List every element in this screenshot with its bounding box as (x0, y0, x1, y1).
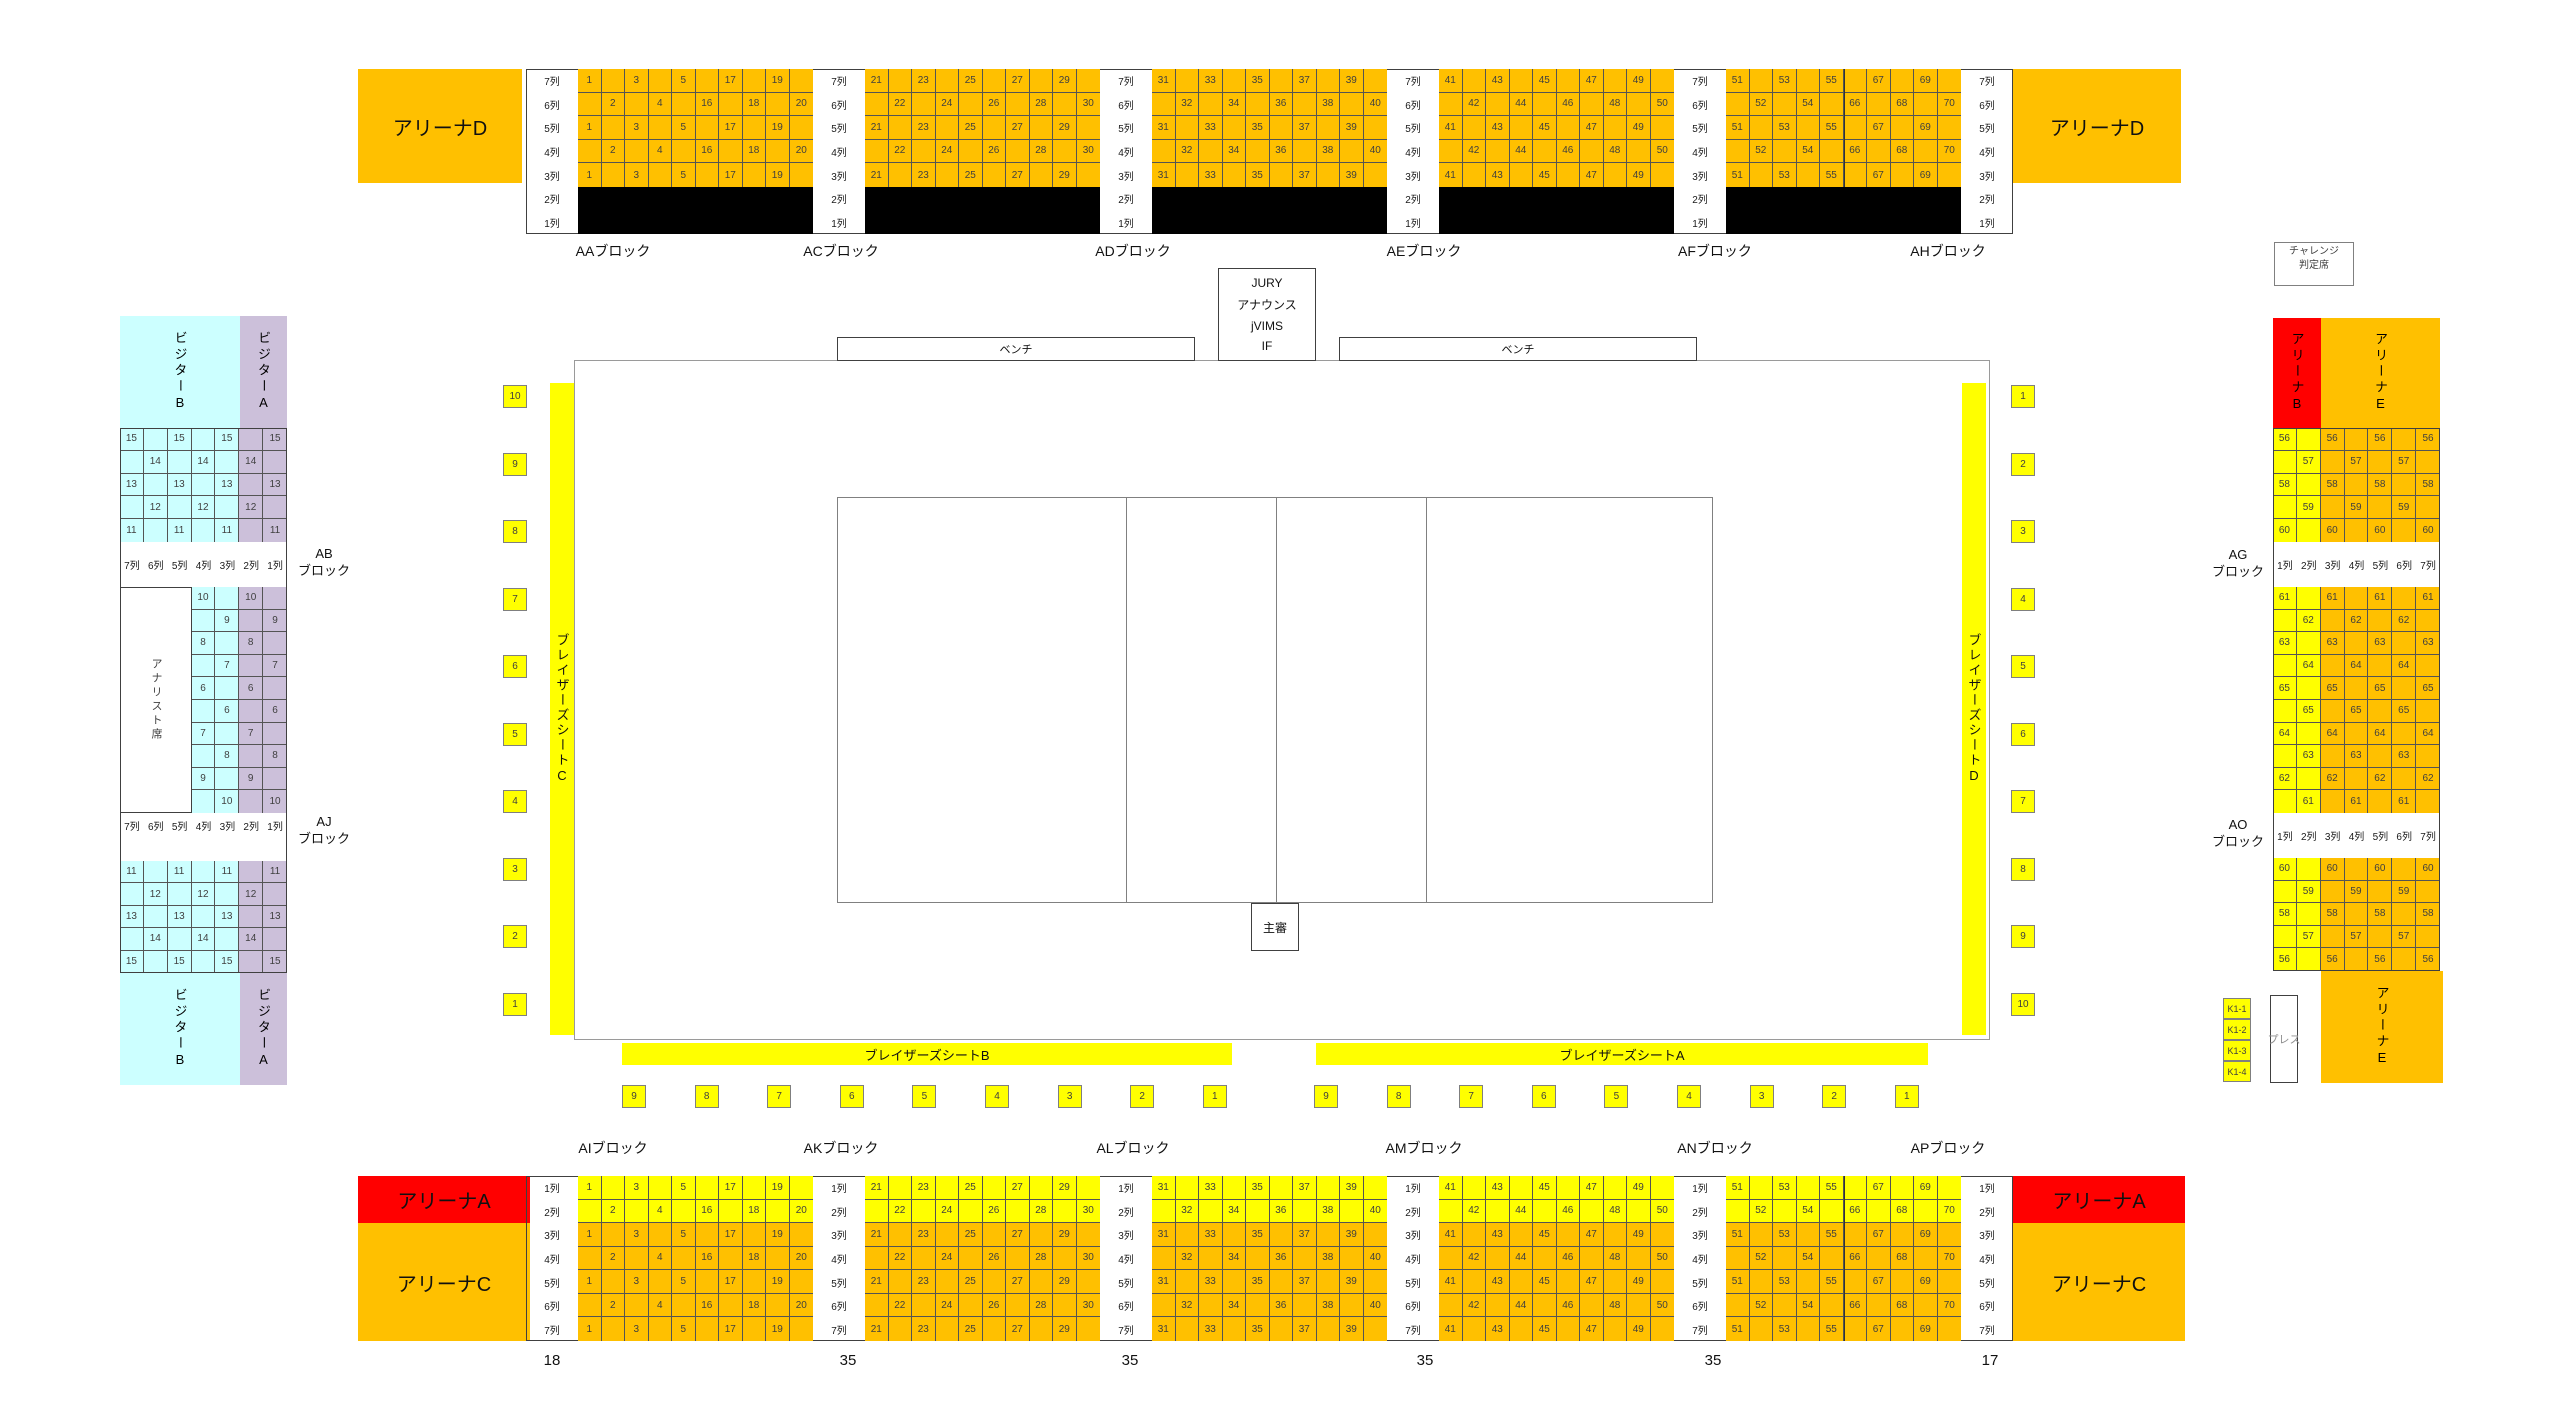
seat-cell (120, 928, 144, 950)
seat-cell: 5 (672, 1176, 696, 1200)
k1-box: K1-2 (2223, 1019, 2251, 1040)
seat-cell (1651, 1270, 1675, 1294)
seat-cell (696, 1270, 720, 1294)
seat-cell: 69 (1914, 116, 1938, 140)
seat-cell: 21 (865, 1317, 889, 1341)
aj-block-line2: ブロック (298, 831, 350, 846)
seat-cell: 31 (1152, 1176, 1176, 1200)
seat-cell (120, 496, 144, 519)
seat-cell (936, 1223, 960, 1247)
row-label: 1列 (526, 1176, 578, 1200)
seat-cell (1006, 1247, 1030, 1271)
seat-cell (959, 93, 983, 117)
seat-cell (1557, 1176, 1581, 1200)
seat-cell (1463, 1270, 1487, 1294)
seat-cell: 63 (2416, 632, 2440, 655)
seat-cell (2345, 768, 2369, 791)
seat-cell: 23 (912, 163, 936, 187)
row-label: 5列 (813, 1270, 865, 1294)
seat-cell: 1 (578, 163, 602, 187)
seat-cell (168, 451, 192, 474)
aisle-number-square: 3 (1750, 1085, 1774, 1108)
seat-cell (2297, 519, 2321, 542)
seat-cell (1726, 1200, 1750, 1224)
aj-block-line1: AJ (316, 814, 331, 829)
seat-cell: 13 (168, 906, 192, 928)
seat-cell: 34 (1223, 93, 1247, 117)
seat-cell: 34 (1223, 140, 1247, 164)
seat-cell (2273, 496, 2297, 519)
row-label: 7列 (2416, 542, 2440, 587)
seat-cell: 27 (1006, 1223, 1030, 1247)
seat-cell (1797, 1317, 1821, 1341)
seat-cell (215, 587, 239, 610)
seat-cell: 47 (1580, 1270, 1604, 1294)
seat-cell (192, 610, 216, 633)
row-label: 6列 (1674, 1294, 1726, 1318)
seat-cell: 16 (696, 93, 720, 117)
announce-line: アナウンス (1237, 296, 1297, 313)
seat-cell (1510, 1317, 1534, 1341)
seat-cell: 25 (959, 69, 983, 93)
seat-cell: 45 (1533, 1176, 1557, 1200)
seat-cell (1439, 1200, 1463, 1224)
seat-cell: 14 (192, 928, 216, 950)
seat-cell: 11 (120, 861, 144, 883)
seat-cell: 31 (1152, 1270, 1176, 1294)
seat-cell: 52 (1750, 1294, 1774, 1318)
seat-cell (1867, 140, 1891, 164)
k1-box: K1-4 (2223, 1061, 2251, 1082)
aisle-number-square: 1 (1895, 1085, 1919, 1108)
aisle-number-square: 1 (503, 993, 527, 1016)
seat-cell (2345, 723, 2369, 746)
seat-cell (649, 1270, 673, 1294)
seat-cell: 2 (602, 93, 626, 117)
row-label: 5列 (813, 116, 865, 140)
seat-cell (1891, 1270, 1915, 1294)
row-label: 6列 (1100, 93, 1152, 117)
seat-cell: 5 (672, 1223, 696, 1247)
seat-cell (672, 1247, 696, 1271)
arena-e-bottom-box: アリーナE (2321, 971, 2443, 1083)
row-label: 1列 (1961, 1176, 2013, 1200)
row-label: 7列 (526, 69, 578, 93)
block-seam-line (1844, 1176, 1845, 1341)
seat-cell: 4 (649, 1294, 673, 1318)
seat-cell (602, 1317, 626, 1341)
seat-cell: 16 (696, 1294, 720, 1318)
seat-cell (1580, 140, 1604, 164)
seat-cell: 58 (2416, 474, 2440, 497)
row-label: 2列 (1387, 187, 1439, 211)
seat-cell (1077, 116, 1101, 140)
seat-cell: 50 (1651, 1247, 1675, 1271)
seat-cell (1317, 1223, 1341, 1247)
seat-cell: 27 (1006, 69, 1030, 93)
seat-cell (263, 677, 287, 700)
seat-cell (1627, 1200, 1651, 1224)
seat-cell (1773, 140, 1797, 164)
seat-cell (263, 632, 287, 655)
seat-cell (1750, 1223, 1774, 1247)
seat-cell: 28 (1030, 1247, 1054, 1271)
seat-cell (1820, 1247, 1844, 1271)
seat-cell (2321, 700, 2345, 723)
seat-cell: 38 (1317, 93, 1341, 117)
seat-cell (1914, 1294, 1938, 1318)
seat-cell: 8 (215, 745, 239, 768)
seat-cell: 14 (144, 928, 168, 950)
seat-cell (1604, 1317, 1628, 1341)
row-label: 5列 (1100, 1270, 1152, 1294)
seat-cell (2297, 723, 2321, 746)
seat-cell: 64 (2416, 723, 2440, 746)
seat-cell (602, 69, 626, 93)
seat-cell: 22 (889, 1294, 913, 1318)
seat-cell: 61 (2273, 587, 2297, 610)
gate-number: 18 (522, 1352, 582, 1369)
seat-cell: 56 (2416, 948, 2440, 971)
seat-cell: 69 (1914, 69, 1938, 93)
seat-cell (215, 451, 239, 474)
seat-cell (936, 1176, 960, 1200)
seat-cell (144, 951, 168, 973)
seat-cell (2273, 700, 2297, 723)
seat-cell (1030, 1223, 1054, 1247)
seat-cell: 55 (1820, 163, 1844, 187)
seat-cell (889, 1270, 913, 1294)
seat-cell (1246, 1294, 1270, 1318)
seat-cell (672, 93, 696, 117)
seat-cell (2345, 903, 2369, 926)
seat-cell: 2 (602, 1247, 626, 1271)
seat-cell: 13 (263, 906, 287, 928)
seat-cell: 12 (144, 883, 168, 905)
row-label: 5列 (1961, 116, 2013, 140)
seat-cell (1750, 69, 1774, 93)
seat-cell: 12 (192, 883, 216, 905)
seat-cell (696, 1176, 720, 1200)
seat-cell: 50 (1651, 93, 1675, 117)
seat-cell: 4 (649, 140, 673, 164)
seat-cell: 29 (1053, 1317, 1077, 1341)
seat-cell: 11 (168, 519, 192, 542)
seat-cell (1152, 1247, 1176, 1271)
seat-cell: 32 (1176, 93, 1200, 117)
seat-cell: 33 (1199, 69, 1223, 93)
seat-cell (719, 1247, 743, 1271)
seat-cell: 18 (743, 1200, 767, 1224)
seat-cell (790, 163, 814, 187)
seat-cell: 30 (1077, 1294, 1101, 1318)
seat-cell (1293, 1294, 1317, 1318)
seat-cell: 42 (1463, 1294, 1487, 1318)
seat-cell (1820, 1200, 1844, 1224)
aisle-number-square: 9 (503, 453, 527, 476)
seat-cell: 60 (2321, 519, 2345, 542)
arena-seating-map: アリーナD アリーナD アリーナA アリーナC アリーナA アリーナC ビジター… (0, 0, 2560, 1423)
seat-cell (1030, 163, 1054, 187)
seat-cell (983, 1176, 1007, 1200)
seat-cell: 41 (1439, 69, 1463, 93)
seat-cell (1293, 1200, 1317, 1224)
row-label: 3列 (1387, 163, 1439, 187)
seat-cell: 28 (1030, 1200, 1054, 1224)
seat-cell (1317, 116, 1341, 140)
aisle-number-square: 3 (2011, 520, 2035, 543)
seat-cell: 67 (1867, 116, 1891, 140)
seat-cell: 33 (1199, 116, 1223, 140)
seat-cell: 53 (1773, 1176, 1797, 1200)
seat-cell (2273, 790, 2297, 813)
seat-cell: 32 (1176, 1200, 1200, 1224)
seat-cell (1364, 1270, 1388, 1294)
seat-cell: 58 (2273, 474, 2297, 497)
jury-line: JURY (1251, 276, 1282, 290)
visitor-b-bottom-box: ビジターB (120, 973, 240, 1085)
seat-cell (1557, 163, 1581, 187)
ag-block-line2: ブロック (2212, 564, 2264, 579)
seat-cell: 54 (1797, 1247, 1821, 1271)
seat-cell: 37 (1293, 1223, 1317, 1247)
seat-cell: 23 (912, 1270, 936, 1294)
row-label: 3列 (215, 813, 239, 837)
seat-cell: 60 (2321, 858, 2345, 881)
seat-cell: 58 (2321, 903, 2345, 926)
seat-cell: 54 (1797, 1200, 1821, 1224)
seat-cell (2345, 474, 2369, 497)
seat-cell (2297, 948, 2321, 971)
jvims-line: jVIMS (1251, 319, 1283, 333)
seat-cell: 20 (790, 1200, 814, 1224)
seat-cell (790, 1270, 814, 1294)
seat-cell: 15 (120, 428, 144, 451)
seat-cell (1246, 1200, 1270, 1224)
seat-cell: 27 (1006, 116, 1030, 140)
seat-cell: 60 (2416, 519, 2440, 542)
seat-cell (215, 677, 239, 700)
seat-cell (1053, 1294, 1077, 1318)
seat-cell (1176, 163, 1200, 187)
seat-cell (1750, 116, 1774, 140)
seat-cell (1773, 93, 1797, 117)
seat-cell (625, 1247, 649, 1271)
row-label: 1列 (2273, 813, 2297, 858)
seat-cell: 26 (983, 93, 1007, 117)
seat-cell (1938, 1223, 1962, 1247)
seat-cell (912, 1294, 936, 1318)
row-label: 4列 (526, 140, 578, 164)
seat-cell: 55 (1820, 1176, 1844, 1200)
seat-cell (790, 1317, 814, 1341)
seat-cell (1223, 163, 1247, 187)
seat-cell: 5 (672, 163, 696, 187)
k1-box: K1-3 (2223, 1040, 2251, 1061)
seat-cell: 19 (766, 1176, 790, 1200)
seat-cell (602, 1176, 626, 1200)
seat-cell: 3 (625, 116, 649, 140)
row-label: 4列 (1674, 140, 1726, 164)
seat-cell: 14 (192, 451, 216, 474)
seat-cell (263, 587, 287, 610)
seat-cell (2273, 451, 2297, 474)
seat-cell: 49 (1627, 1317, 1651, 1341)
unused-rows-black-strip (1152, 187, 1387, 234)
seat-cell (1820, 1294, 1844, 1318)
seat-cell: 26 (983, 1247, 1007, 1271)
seat-cell: 39 (1340, 163, 1364, 187)
seat-cell: 35 (1246, 1223, 1270, 1247)
seat-cell: 43 (1486, 69, 1510, 93)
seat-cell (1317, 1270, 1341, 1294)
seat-cell (1604, 69, 1628, 93)
gate-number: 35 (1683, 1352, 1743, 1369)
seat-cell: 62 (2392, 610, 2416, 633)
seat-cell: 70 (1938, 1247, 1962, 1271)
seat-cell (743, 116, 767, 140)
seat-cell (1820, 140, 1844, 164)
row-label: 3列 (526, 1223, 578, 1247)
seat-cell: 56 (2273, 428, 2297, 451)
seat-cell (2392, 519, 2416, 542)
seat-cell: 28 (1030, 93, 1054, 117)
seat-cell: 57 (2297, 451, 2321, 474)
seat-cell (1317, 1176, 1341, 1200)
seat-cell (1604, 1223, 1628, 1247)
aisle-number-square: 2 (1130, 1085, 1154, 1108)
aisle-number-square: 7 (1459, 1085, 1483, 1108)
seat-cell (215, 723, 239, 746)
row-label: 7列 (1674, 69, 1726, 93)
seat-cell: 56 (2416, 428, 2440, 451)
seat-cell: 19 (766, 1317, 790, 1341)
seat-cell (1176, 1223, 1200, 1247)
seat-cell: 56 (2368, 428, 2392, 451)
seat-cell: 31 (1152, 69, 1176, 93)
seat-cell: 31 (1152, 1223, 1176, 1247)
seat-cell: 18 (743, 1294, 767, 1318)
seat-cell (1223, 1270, 1247, 1294)
seat-cell: 21 (865, 1176, 889, 1200)
seat-cell: 7 (239, 723, 263, 746)
seat-cell (1053, 140, 1077, 164)
row-label: 4列 (192, 542, 216, 587)
seat-cell (983, 69, 1007, 93)
seat-cell (2297, 768, 2321, 791)
seat-cell: 34 (1223, 1294, 1247, 1318)
row-label: 4列 (526, 1247, 578, 1271)
seat-cell: 33 (1199, 163, 1223, 187)
seat-cell: 24 (936, 1200, 960, 1224)
seat-cell: 15 (168, 951, 192, 973)
seat-cell (192, 951, 216, 973)
seat-cell (672, 140, 696, 164)
seat-cell (1176, 116, 1200, 140)
gate-number: 35 (1395, 1352, 1455, 1369)
seat-cell (625, 1200, 649, 1224)
seat-cell (1867, 1200, 1891, 1224)
row-label: 1列 (1387, 1176, 1439, 1200)
seat-cell (719, 93, 743, 117)
seat-cell: 57 (2345, 451, 2369, 474)
seat-cell (1797, 69, 1821, 93)
arena-d-left-box: アリーナD (358, 69, 522, 183)
seat-cell: 17 (719, 1317, 743, 1341)
chief-referee-box: 主審 (1251, 903, 1299, 951)
seat-cell: 51 (1726, 69, 1750, 93)
press-box: プレス (2270, 995, 2298, 1083)
seat-cell: 10 (192, 587, 216, 610)
seat-cell: 21 (865, 1223, 889, 1247)
seat-cell (766, 93, 790, 117)
seat-cell (1510, 1176, 1534, 1200)
aisle-number-square: 6 (1532, 1085, 1556, 1108)
block-label: APブロック (1878, 1138, 2018, 1158)
seat-cell: 25 (959, 1317, 983, 1341)
seat-cell (1891, 163, 1915, 187)
seat-cell (2416, 790, 2440, 813)
seat-cell (1557, 1317, 1581, 1341)
seat-cell (936, 163, 960, 187)
seat-cell: 6 (192, 677, 216, 700)
aisle-number-square: 5 (2011, 655, 2035, 678)
seat-cell: 49 (1627, 163, 1651, 187)
seat-cell (1510, 163, 1534, 187)
seat-cell: 11 (120, 519, 144, 542)
seat-cell: 13 (168, 474, 192, 497)
seat-cell: 3 (625, 1317, 649, 1341)
seat-cell: 3 (625, 1270, 649, 1294)
seat-cell (1317, 1317, 1341, 1341)
seat-cell (1844, 116, 1868, 140)
seat-cell: 46 (1557, 140, 1581, 164)
seat-cell (215, 632, 239, 655)
seat-cell: 29 (1053, 163, 1077, 187)
seat-cell (602, 163, 626, 187)
row-label: 6列 (526, 93, 578, 117)
seat-cell: 48 (1604, 1294, 1628, 1318)
seat-cell: 12 (192, 496, 216, 519)
seat-cell: 49 (1627, 69, 1651, 93)
seat-cell: 48 (1604, 93, 1628, 117)
seat-cell: 54 (1797, 1294, 1821, 1318)
unused-rows-black-strip (578, 187, 813, 234)
seat-cell: 3 (625, 1223, 649, 1247)
aisle-number-square: 9 (1314, 1085, 1338, 1108)
seat-cell (144, 428, 168, 451)
row-label: 6列 (2392, 542, 2416, 587)
volleyball-court (837, 497, 1713, 903)
aisle-number-square: 7 (2011, 790, 2035, 813)
seat-cell: 35 (1246, 69, 1270, 93)
seat-cell: 33 (1199, 1317, 1223, 1341)
seat-cell (239, 519, 263, 542)
seat-cell (936, 69, 960, 93)
seat-cell: 29 (1053, 1176, 1077, 1200)
seat-cell: 24 (936, 1247, 960, 1271)
seat-cell (1006, 93, 1030, 117)
seat-cell: 2 (602, 1294, 626, 1318)
seat-cell (1486, 93, 1510, 117)
seat-cell: 8 (192, 632, 216, 655)
seat-cell (1726, 140, 1750, 164)
seat-cell: 66 (1844, 1200, 1868, 1224)
seat-cell (2345, 858, 2369, 881)
seat-cell: 70 (1938, 93, 1962, 117)
seat-cell (1604, 1270, 1628, 1294)
seat-cell: 70 (1938, 1294, 1962, 1318)
